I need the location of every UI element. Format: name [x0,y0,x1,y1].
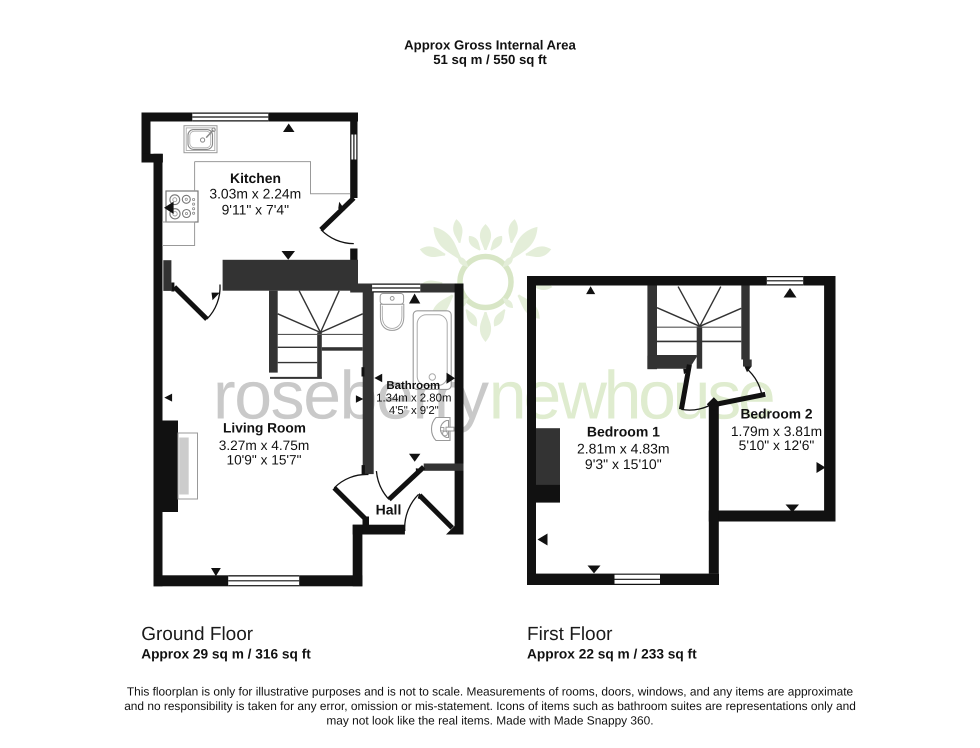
svg-text:Approx Gross Internal Area: Approx Gross Internal Area [404,38,576,53]
svg-text:4'5" x 9'2": 4'5" x 9'2" [389,405,439,417]
svg-text:Approx 29 sq m / 316 sq ft: Approx 29 sq m / 316 sq ft [141,647,311,662]
svg-text:Bedroom 1: Bedroom 1 [587,423,660,439]
svg-text:9'3" x 15'10": 9'3" x 15'10" [585,456,662,472]
svg-text:Approx 22 sq m / 233 sq ft: Approx 22 sq m / 233 sq ft [527,647,697,662]
svg-text:Ground Floor: Ground Floor [141,624,254,645]
svg-text:Living Room: Living Room [223,420,306,435]
svg-text:5'10" x 12'6": 5'10" x 12'6" [739,438,815,453]
svg-text:1.34m x 2.80m: 1.34m x 2.80m [376,392,451,404]
svg-text:Kitchen: Kitchen [230,170,281,186]
svg-text:2.81m x 4.83m: 2.81m x 4.83m [577,440,670,456]
svg-text:Bedroom 2: Bedroom 2 [740,407,812,422]
svg-text:3.27m x 4.75m: 3.27m x 4.75m [219,438,310,453]
svg-text:and no responsibility is taken: and no responsibility is taken for any e… [124,699,856,713]
svg-text:10'9" x 15'7": 10'9" x 15'7" [226,453,301,468]
svg-text:may not look like the real ite: may not look like the real items. Made w… [326,714,653,728]
svg-text:Hall: Hall [376,502,402,518]
svg-text:1.79m x 3.81m: 1.79m x 3.81m [731,424,822,439]
svg-text:This floorplan is only for ill: This floorplan is only for illustrative … [127,685,854,699]
svg-text:9'11" x 7'4": 9'11" x 7'4" [222,201,289,217]
svg-text:First Floor: First Floor [527,624,613,645]
svg-text:Bathroom: Bathroom [386,380,440,392]
svg-text:51 sq m / 550 sq ft: 51 sq m / 550 sq ft [433,52,547,67]
svg-text:3.03m x 2.24m: 3.03m x 2.24m [209,186,301,202]
